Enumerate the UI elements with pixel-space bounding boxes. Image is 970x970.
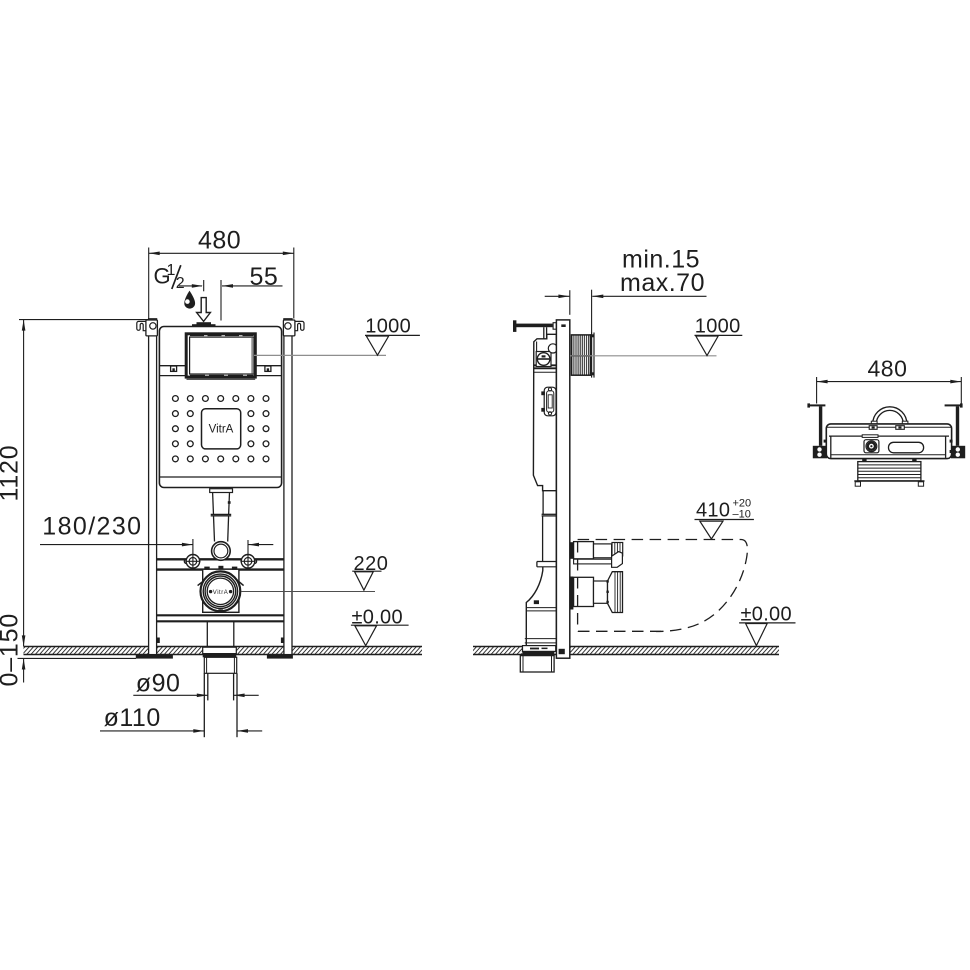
svg-text:VitrA: VitrA xyxy=(213,590,228,596)
svg-text:max.70: max.70 xyxy=(620,269,705,297)
svg-text:±0.00: ±0.00 xyxy=(741,603,792,625)
svg-text:ø110: ø110 xyxy=(104,704,161,732)
svg-text:VitrA: VitrA xyxy=(209,424,234,436)
svg-text:55: 55 xyxy=(250,263,279,291)
svg-text:2: 2 xyxy=(176,275,185,292)
svg-text:1000: 1000 xyxy=(365,316,411,338)
svg-text:1120: 1120 xyxy=(0,445,24,502)
svg-text:–10: –10 xyxy=(733,508,751,520)
svg-text:1: 1 xyxy=(167,262,176,279)
svg-text:480: 480 xyxy=(198,227,241,255)
svg-text:410: 410 xyxy=(696,500,730,522)
svg-text:480: 480 xyxy=(868,356,908,382)
svg-text:0–150: 0–150 xyxy=(0,613,24,687)
svg-text:180/230: 180/230 xyxy=(42,513,142,541)
svg-text:ø90: ø90 xyxy=(136,669,181,697)
svg-text:1000: 1000 xyxy=(695,316,741,338)
